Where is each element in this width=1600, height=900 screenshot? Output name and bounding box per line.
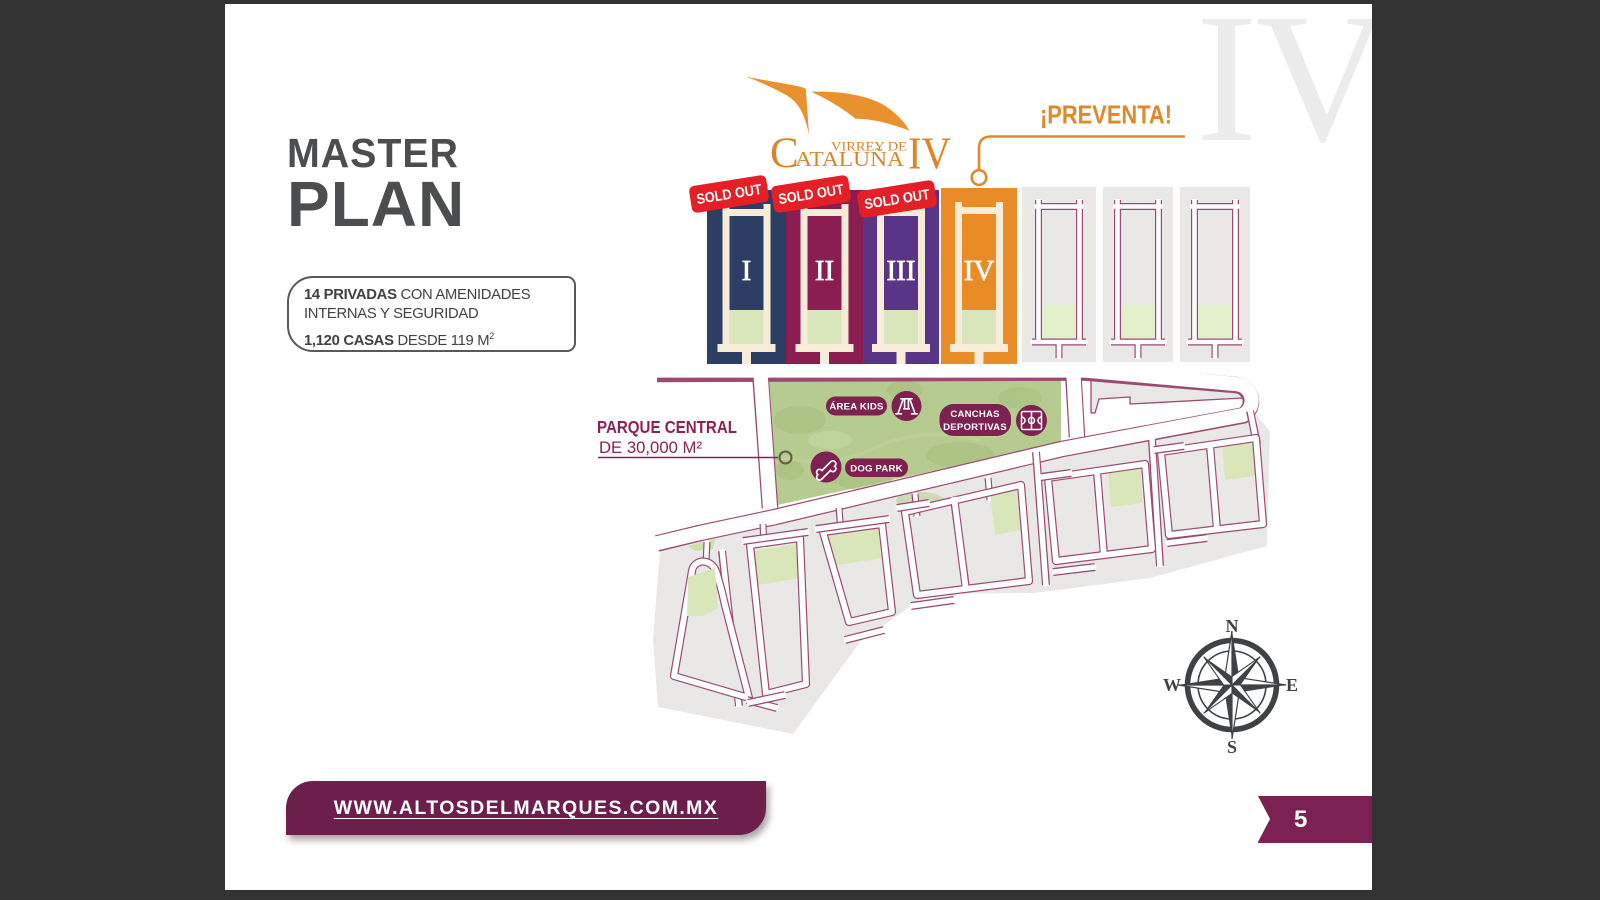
svg-text:II: II — [815, 255, 834, 287]
svg-text:DOG PARK: DOG PARK — [850, 464, 903, 475]
svg-text:DE 30,000 M²: DE 30,000 M² — [599, 439, 703, 457]
svg-text:III: III — [887, 255, 916, 287]
svg-text:ÁREA KIDS: ÁREA KIDS — [829, 401, 884, 413]
svg-text:I: I — [742, 255, 752, 287]
svg-text:¡PREVENTA!: ¡PREVENTA! — [1040, 100, 1172, 130]
svg-text:E: E — [1286, 675, 1298, 695]
svg-text:S: S — [1227, 737, 1237, 757]
svg-text:IV: IV — [908, 128, 951, 179]
svg-text:PARQUE CENTRAL: PARQUE CENTRAL — [597, 417, 737, 437]
svg-text:VIRREY DE: VIRREY DE — [831, 140, 907, 154]
svg-text:N: N — [1226, 616, 1239, 636]
svg-text:DEPORTIVAS: DEPORTIVAS — [943, 422, 1007, 433]
svg-text:CANCHAS: CANCHAS — [950, 409, 1000, 420]
svg-text:IV: IV — [964, 255, 995, 287]
svg-text:W: W — [1163, 675, 1181, 695]
